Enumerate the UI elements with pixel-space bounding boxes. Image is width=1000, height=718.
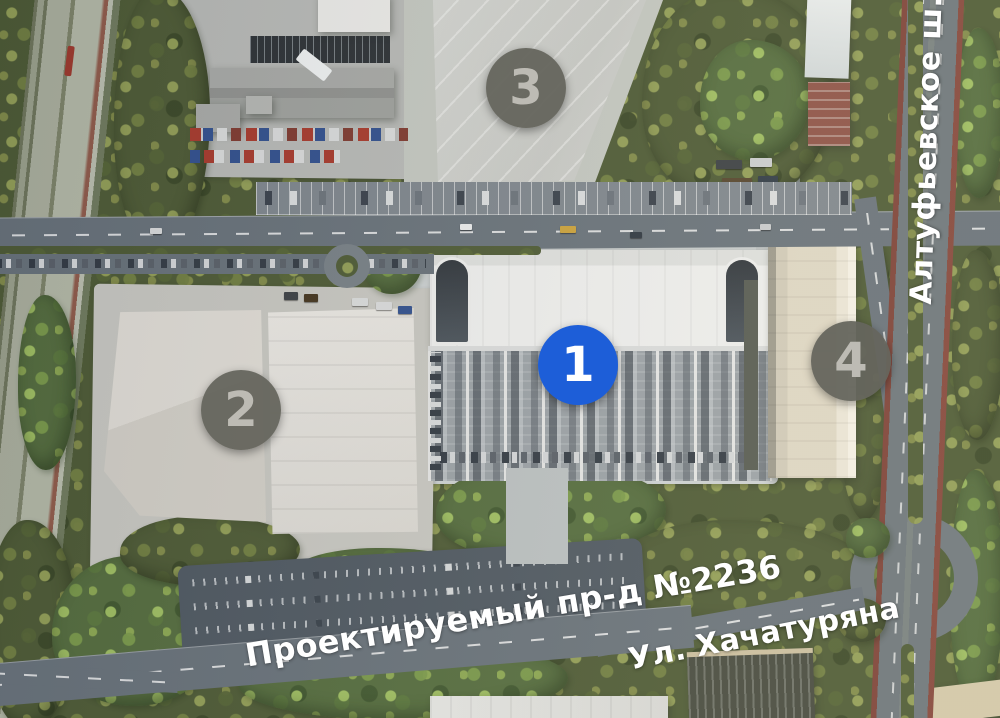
site-plan-map: Проектируемый пр-д №2236 Ул. Хачатуряна … bbox=[0, 0, 1000, 718]
truck bbox=[352, 298, 368, 306]
car bbox=[460, 224, 472, 230]
car bbox=[630, 232, 642, 238]
marker-number: 1 bbox=[561, 341, 594, 389]
building-2-roof-east bbox=[268, 308, 418, 534]
solar-panel-array bbox=[250, 36, 390, 63]
driveway bbox=[506, 468, 568, 564]
marker-number: 4 bbox=[834, 337, 867, 385]
map-marker-building-1[interactable]: 1 bbox=[538, 325, 618, 405]
map-marker-building-3[interactable]: 3 bbox=[486, 48, 566, 128]
grove bbox=[956, 28, 1000, 198]
map-marker-building-2[interactable]: 2 bbox=[201, 370, 281, 450]
map-marker-building-4[interactable]: 4 bbox=[811, 321, 891, 401]
rooftop-structure bbox=[318, 0, 390, 32]
building-edge bbox=[430, 696, 668, 718]
truck bbox=[750, 158, 772, 167]
entrance-canopy bbox=[436, 260, 468, 342]
container-row bbox=[190, 150, 340, 163]
truck bbox=[284, 292, 298, 300]
parked-car-row bbox=[440, 452, 756, 463]
car bbox=[760, 224, 771, 230]
highway-median-trees bbox=[901, 644, 914, 718]
mini-roundabout bbox=[324, 244, 370, 288]
roundabout-island bbox=[336, 255, 358, 277]
truck bbox=[376, 302, 392, 310]
rooftop-structure bbox=[246, 96, 272, 114]
grove bbox=[952, 250, 1000, 440]
marker-number: 2 bbox=[224, 386, 257, 434]
loading-dock bbox=[744, 280, 758, 470]
truck bbox=[398, 306, 412, 314]
red-roof-building bbox=[808, 82, 850, 146]
small-building bbox=[805, 0, 852, 79]
street-parking-strip bbox=[256, 182, 852, 215]
marker-number: 3 bbox=[509, 64, 542, 112]
container-row bbox=[190, 128, 408, 141]
truck bbox=[716, 160, 742, 169]
bus bbox=[560, 226, 576, 233]
car bbox=[150, 228, 162, 234]
truck bbox=[304, 294, 318, 302]
parked-car-column bbox=[430, 352, 441, 470]
